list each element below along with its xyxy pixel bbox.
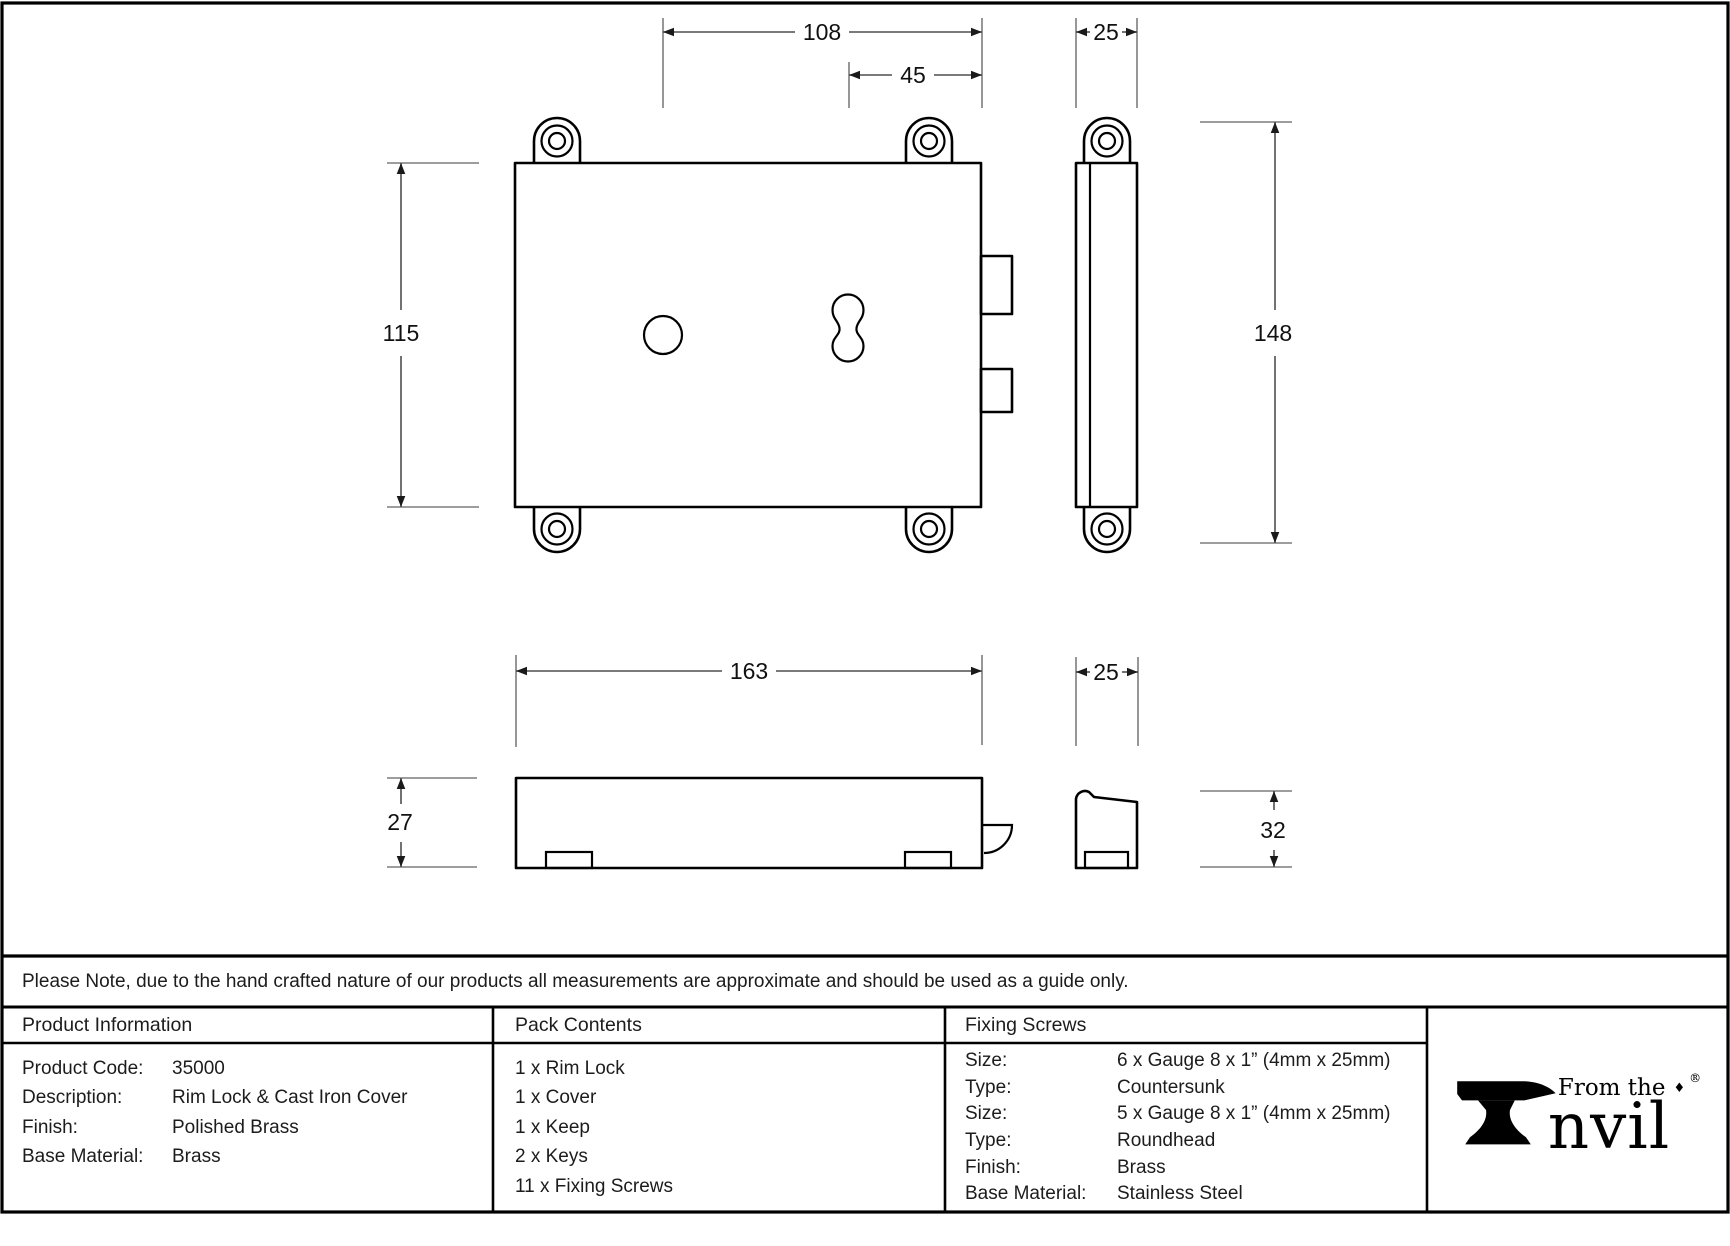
plan-view (516, 778, 1012, 868)
dim-label-115: 115 (383, 320, 420, 346)
field-label: Size: (965, 1103, 1117, 1125)
dim-label-108: 108 (803, 19, 841, 45)
field-value: Rim Lock & Cast Iron Cover (172, 1087, 407, 1109)
screw-hole-inner (549, 521, 565, 537)
dimension-115: 115 (383, 163, 420, 507)
field-value: Brass (172, 1146, 221, 1168)
side-view (1076, 118, 1137, 552)
field-label: Type: (965, 1130, 1117, 1152)
dim-label-25-bottom: 25 (1093, 659, 1119, 685)
pack-contents-header: Pack Contents (515, 1007, 642, 1043)
dimension-148: 148 (1254, 122, 1292, 543)
dimension-25-bottom: 25 (1076, 659, 1138, 685)
registered-mark: ® (1689, 1071, 1701, 1085)
dimension-163: 163 (516, 658, 982, 684)
list-item: 11 x Fixing Screws (515, 1172, 673, 1202)
screw-hole-inner (549, 133, 565, 149)
dead-bolt (981, 369, 1012, 412)
table-row: Finish: Brass (965, 1154, 1390, 1181)
specification-sheet: 108 45 25 115 148 163 (0, 0, 1730, 1246)
lock-side-body (1076, 163, 1137, 507)
field-value: 35000 (172, 1058, 225, 1080)
latch-bolt-plan (982, 825, 1012, 853)
foot (905, 852, 951, 868)
screw-hole-inner (1099, 133, 1115, 149)
table-row: Type: Countersunk (965, 1075, 1390, 1102)
field-value: Polished Brass (172, 1117, 299, 1139)
spindle-hole (644, 316, 682, 354)
measurement-note: Please Note, due to the hand crafted nat… (22, 956, 1129, 1007)
screw-hole (542, 514, 573, 545)
screw-hole (542, 126, 573, 157)
field-label: Finish: (22, 1117, 172, 1139)
dimension-45: 45 (849, 62, 982, 88)
keep-view (1076, 791, 1137, 868)
table-row: Base Material: Stainless Steel (965, 1181, 1390, 1208)
screw-hole (1092, 126, 1123, 157)
table-row: Type: Roundhead (965, 1128, 1390, 1155)
keyhole (833, 295, 864, 362)
screw-hole (1092, 514, 1123, 545)
keep-notch (1085, 852, 1128, 868)
field-label: Type: (965, 1077, 1117, 1099)
lock-plan-body (516, 778, 982, 868)
lock-body (515, 163, 981, 507)
fixing-screws-header: Fixing Screws (965, 1007, 1086, 1043)
fixing-screws-rows: Size: 6 x Gauge 8 x 1” (4mm x 25mm) Type… (965, 1048, 1390, 1208)
list-item: 1 x Cover (515, 1084, 673, 1114)
logo-brand-text: nvil (1548, 1101, 1701, 1153)
dimension-27: 27 (387, 778, 413, 867)
table-row: Product Code: 35000 (22, 1054, 407, 1084)
diamond-icon: ♦ (1673, 1081, 1685, 1096)
screw-hole-inner (1099, 521, 1115, 537)
product-information-header: Product Information (22, 1007, 192, 1043)
brand-logo: From the ♦ ® nvil (1427, 1007, 1728, 1212)
field-value: Stainless Steel (1117, 1183, 1243, 1205)
latch-bolt (981, 256, 1012, 314)
field-value: Brass (1117, 1157, 1166, 1179)
field-value: Roundhead (1117, 1130, 1215, 1152)
dim-label-27: 27 (387, 809, 413, 835)
anvil-icon (1454, 1066, 1558, 1154)
dim-label-25-top: 25 (1093, 19, 1119, 45)
product-information-rows: Product Code: 35000 Description: Rim Loc… (22, 1054, 407, 1172)
field-label: Base Material: (965, 1183, 1117, 1205)
dimension-108: 108 (663, 19, 982, 45)
table-row: Size: 6 x Gauge 8 x 1” (4mm x 25mm) (965, 1048, 1390, 1075)
field-value: 6 x Gauge 8 x 1” (4mm x 25mm) (1117, 1050, 1390, 1072)
screw-hole-inner (921, 521, 937, 537)
table-row: Base Material: Brass (22, 1143, 407, 1173)
dimension-25-top: 25 (1076, 19, 1137, 45)
list-item: 2 x Keys (515, 1143, 673, 1173)
dim-label-45: 45 (900, 62, 926, 88)
list-item: 1 x Rim Lock (515, 1054, 673, 1084)
front-view (515, 118, 1012, 552)
list-item: 1 x Keep (515, 1113, 673, 1143)
dim-label-163: 163 (730, 658, 768, 684)
screw-hole (914, 126, 945, 157)
dimensions: 108 45 25 115 148 163 (383, 18, 1293, 867)
dim-label-32: 32 (1260, 817, 1286, 843)
field-value: Countersunk (1117, 1077, 1225, 1099)
table-row: Finish: Polished Brass (22, 1113, 407, 1143)
dimension-32: 32 (1260, 791, 1286, 867)
field-label: Finish: (965, 1157, 1117, 1179)
screw-hole-inner (921, 133, 937, 149)
field-label: Size: (965, 1050, 1117, 1072)
dim-label-148: 148 (1254, 320, 1292, 346)
field-label: Base Material: (22, 1146, 172, 1168)
table-row: Size: 5 x Gauge 8 x 1” (4mm x 25mm) (965, 1101, 1390, 1128)
field-label: Product Code: (22, 1058, 172, 1080)
screw-hole (914, 514, 945, 545)
table-row: Description: Rim Lock & Cast Iron Cover (22, 1084, 407, 1114)
pack-contents-rows: 1 x Rim Lock 1 x Cover 1 x Keep 2 x Keys… (515, 1054, 673, 1202)
foot (546, 852, 592, 868)
field-value: 5 x Gauge 8 x 1” (4mm x 25mm) (1117, 1103, 1390, 1125)
field-label: Description: (22, 1087, 172, 1109)
